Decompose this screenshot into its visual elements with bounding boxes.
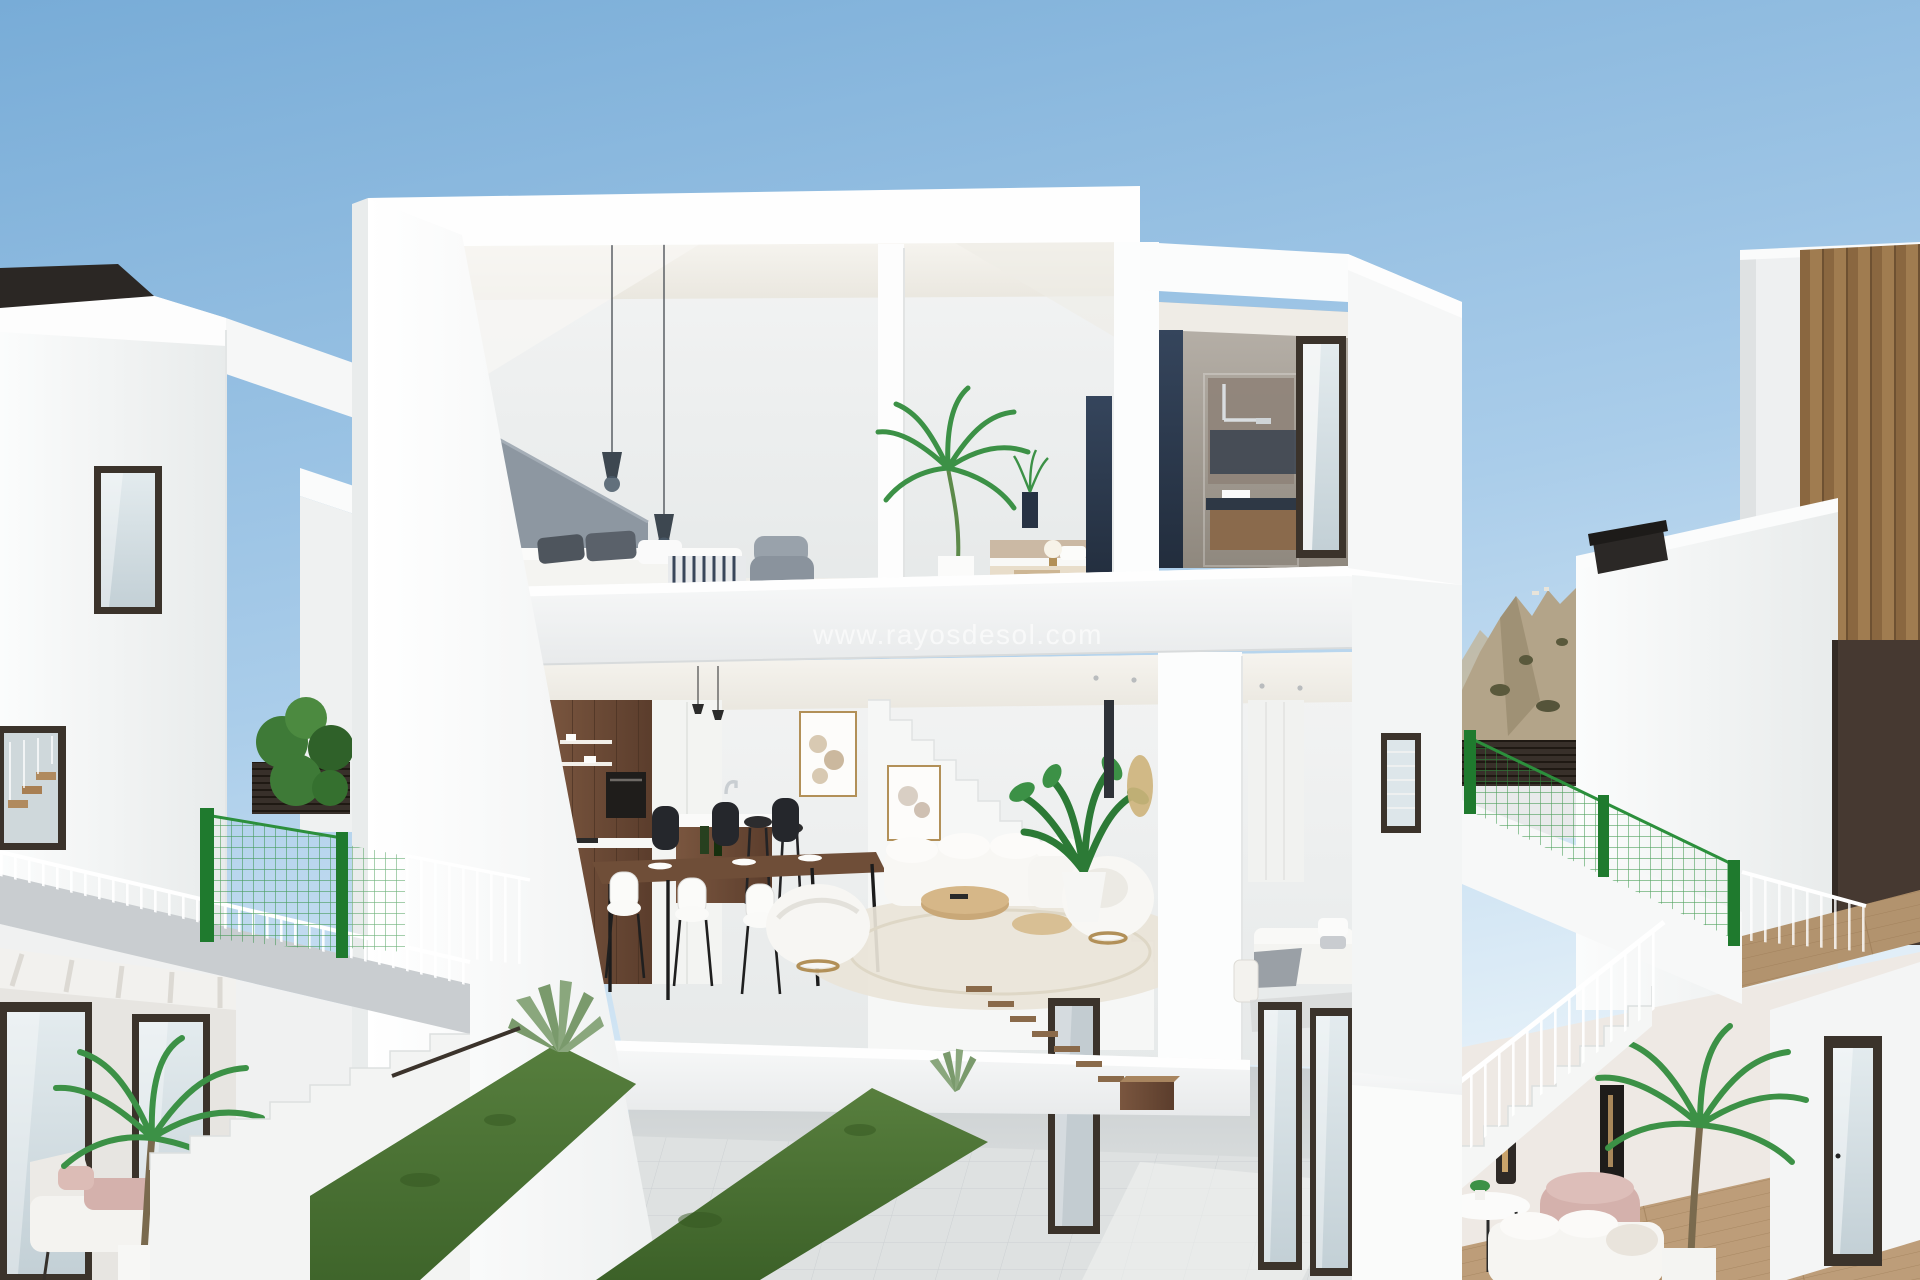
render-canvas: www.rayosdesol.com [0, 0, 1920, 1280]
room-divider-wall [878, 244, 904, 592]
watermark: www.rayosdesol.com [812, 619, 1103, 650]
laundry-basket [1234, 960, 1258, 1002]
bathroom-cut-wall [1114, 242, 1159, 572]
window-lower-stairwell [0, 726, 66, 850]
shower-head [1256, 418, 1271, 424]
right-wing-wall [1352, 575, 1462, 1085]
gold-wall-mirror [1127, 755, 1153, 817]
window-upper [94, 466, 162, 614]
navy-wardrobe-panel [1086, 396, 1112, 588]
entry-door [1824, 1036, 1882, 1266]
wardrobe [1248, 700, 1304, 882]
bed-3 [1254, 918, 1354, 988]
slim-dark-panel [1104, 700, 1114, 798]
bathroom-window [1296, 336, 1346, 558]
bathroom [1159, 302, 1348, 568]
basement-right-wall [1352, 1085, 1462, 1280]
navy-divider [1159, 330, 1183, 568]
middle-floor [543, 652, 1360, 1068]
top-floor [462, 240, 1140, 596]
living-partition-wall [1158, 652, 1242, 1066]
